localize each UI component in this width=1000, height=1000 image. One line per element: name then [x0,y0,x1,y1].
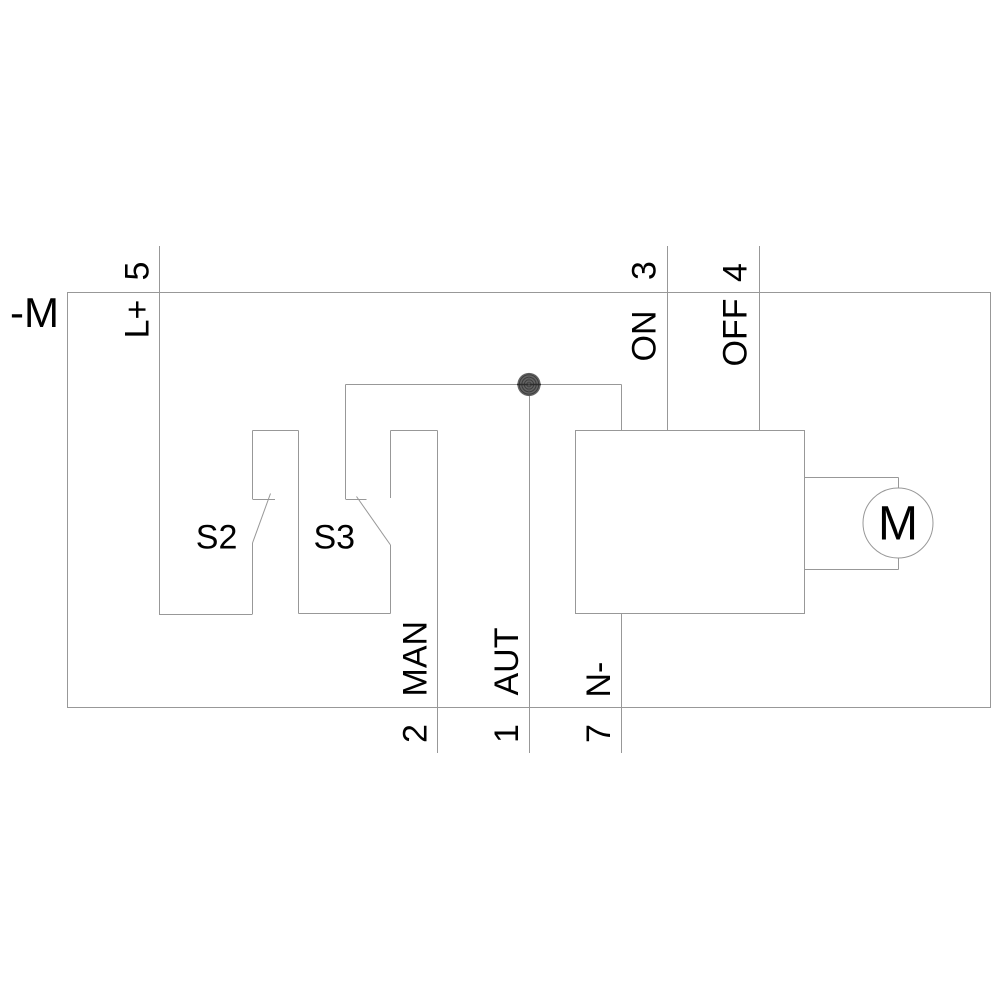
svg-text:MAN: MAN [397,621,435,697]
svg-text:N-: N- [580,662,618,698]
svg-text:1: 1 [488,724,526,743]
svg-text:4: 4 [717,263,755,282]
svg-text:S3: S3 [314,518,356,556]
svg-text:S2: S2 [196,518,238,556]
svg-text:7: 7 [580,724,618,743]
svg-text:3: 3 [626,261,664,280]
svg-text:L+: L+ [119,300,157,339]
svg-text:-M: -M [10,289,59,336]
svg-text:M: M [878,498,918,551]
svg-text:AUT: AUT [488,628,526,696]
svg-text:ON: ON [626,311,664,362]
svg-text:5: 5 [119,262,157,281]
svg-text:2: 2 [397,724,435,743]
svg-text:OFF: OFF [717,299,755,367]
